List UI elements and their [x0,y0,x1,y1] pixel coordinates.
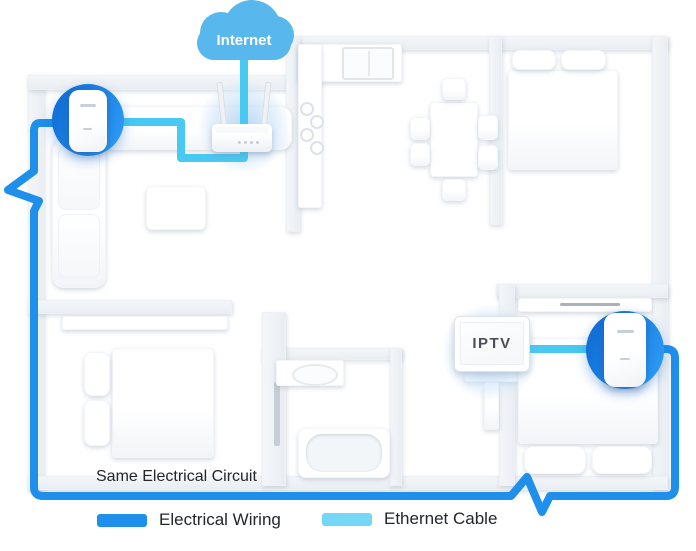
router-body [212,124,272,152]
same-circuit-label: Same Electrical Circuit [96,468,257,486]
iptv-screen-icon: IPTV [454,316,530,372]
electrical-wiring-line [8,123,675,512]
powerline-adapter-icon [69,90,107,152]
ethernet-cable-label: Ethernet Cable [384,509,497,529]
internet-label: Internet [197,32,291,49]
powerline-adapter-icon [604,313,646,387]
iptv-label: IPTV [472,335,511,352]
powerline-network-diagram: Internet IPTV [0,0,696,551]
electrical-wiring-label: Electrical Wiring [159,510,281,530]
electrical-wiring-swatch [97,514,147,527]
ethernet-cable-swatch [322,513,372,526]
